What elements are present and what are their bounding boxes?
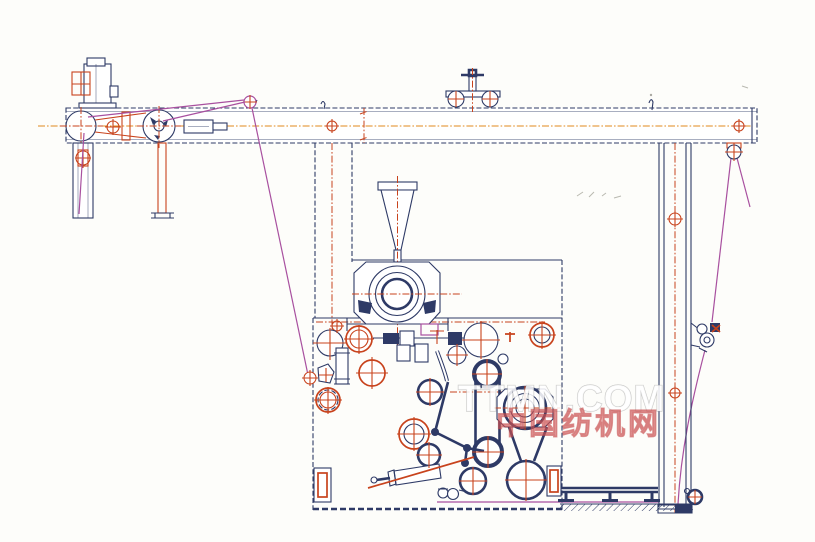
coiler-head (347, 262, 462, 331)
thread-right-descending (712, 158, 731, 322)
pencil-strokes (577, 192, 621, 198)
rail-end-pulley-cross (725, 143, 743, 161)
cylinder-body (394, 464, 441, 485)
linkage-pivot-b (463, 444, 471, 452)
floor-rail-lines (560, 488, 658, 492)
textile-machine-elevation-diagram: TTMN.COM 中国纺机网 (0, 0, 815, 542)
tension-roller-small (697, 324, 707, 334)
cylinder-rod (376, 478, 390, 480)
damper-rod-end (213, 123, 227, 130)
shaft-block-c (448, 332, 462, 345)
rod-eye (371, 477, 377, 483)
rail-foot-3 (644, 492, 660, 502)
motor-base (79, 103, 116, 108)
left-legs (73, 143, 174, 218)
threaded-support-rod (158, 143, 166, 213)
bell-crank-lever-center (437, 351, 447, 381)
coiler-housing (354, 262, 440, 324)
watermark: TTMN.COM 中国纺机网 (458, 378, 665, 441)
motor-body (84, 64, 111, 106)
linkage-pivot-a (431, 428, 439, 436)
floor-rail (558, 488, 660, 502)
rail-foot-2 (602, 492, 618, 502)
floor-guide-wheel (685, 489, 703, 505)
tension-bracket (691, 320, 700, 350)
support-rod-foot (151, 213, 174, 218)
bracket-a (397, 345, 410, 361)
pencil-dash (742, 86, 748, 88)
ground-hatch (560, 504, 693, 511)
thread-down-to-machine (252, 108, 308, 375)
foot-roller-b (448, 489, 459, 500)
guide-pulley-cross (243, 95, 257, 109)
small-roller-g (498, 354, 508, 364)
post-pin-upper-cross (667, 211, 683, 227)
post-pin-lower-cross (668, 386, 682, 400)
thread-right-short (737, 158, 750, 207)
shaft-fitting-marked (421, 324, 438, 335)
tension-device (691, 320, 720, 352)
thread-guide-pulley (243, 95, 257, 109)
motor-terminal-box (110, 86, 118, 97)
shaft-fitting-cross (430, 330, 444, 344)
pencil-dot (650, 94, 652, 96)
scanned-machine-drawing: TTMN.COM 中国纺机网 (0, 0, 815, 542)
tension-roller-large (700, 333, 714, 347)
turnbuckle (334, 348, 350, 384)
shaft-block-b (400, 331, 414, 346)
watermark-chinese-text: 中国纺机网 (496, 408, 661, 441)
bracket-b (415, 344, 428, 362)
plus-marker (505, 332, 515, 342)
tension-foot (699, 348, 707, 352)
shaft-block-a (383, 333, 399, 344)
rail-trolley (446, 68, 500, 112)
